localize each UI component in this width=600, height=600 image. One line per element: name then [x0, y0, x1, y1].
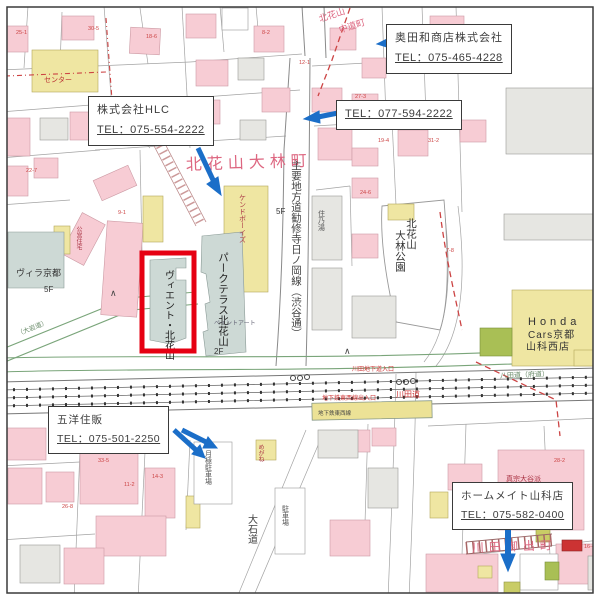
- svg-text:北花山: 北花山: [405, 218, 417, 250]
- svg-text:8-2: 8-2: [262, 30, 270, 36]
- company-tel: TEL：077-594-2222: [345, 105, 453, 125]
- svg-text:住乃湯: 住乃湯: [318, 209, 326, 232]
- svg-text:地下鉄東西線出入口: 地下鉄東西線出入口: [322, 394, 376, 402]
- green-building: [480, 328, 512, 356]
- svg-text:ペイントアート: ペイントアート: [214, 320, 256, 327]
- svg-text:7-8: 7-8: [446, 248, 454, 254]
- svg-text:公営住宅: 公営住宅: [75, 226, 82, 250]
- svg-text:（大岩道）: （大岩道）: [15, 317, 49, 338]
- map-screenshot: 30-525-118-68-212-127-319-431-224-67-815…: [0, 0, 600, 600]
- svg-text:11-2: 11-2: [124, 482, 135, 488]
- svg-text:5F: 5F: [44, 285, 53, 294]
- annotation-box-homemate: ホームメイト山科店 TEL：075-582-0400: [452, 482, 573, 530]
- svg-text:めがね: めがね: [257, 444, 264, 462]
- company-name: 奥田和商店株式会社: [395, 29, 503, 49]
- annotation-box-tel077: TEL：077-594-2222: [336, 100, 462, 130]
- svg-text:33-5: 33-5: [98, 458, 109, 464]
- svg-text:28-2: 28-2: [554, 458, 565, 464]
- svg-text:大林公園: 大林公園: [394, 229, 406, 273]
- svg-text:2F: 2F: [214, 347, 223, 356]
- svg-text:川田御出町: 川田御出町: [472, 537, 557, 555]
- svg-text:センター: センター: [44, 75, 72, 84]
- svg-text:Cars京都: Cars京都: [528, 328, 575, 341]
- company-tel: TEL：075-501-2250: [57, 430, 160, 449]
- svg-text:主要地方道勧修寺日ノ岡線（渋谷通）: 主要地方道勧修寺日ノ岡線（渋谷通）: [290, 160, 302, 339]
- annotation-box-goyo: 五洋住販 TEL：075-501-2250: [48, 406, 169, 454]
- annotation-box-okudawa: 奥田和商店株式会社 TEL：075-465-4228: [386, 24, 512, 74]
- svg-text:月極駐車場: 月極駐車場: [205, 450, 213, 486]
- svg-text:パークテラス北花山: パークテラス北花山: [217, 252, 229, 347]
- svg-text:大石道: 大石道: [246, 513, 258, 544]
- svg-text:19-4: 19-4: [378, 138, 389, 144]
- svg-text:Honda: Honda: [528, 316, 580, 328]
- svg-text:31-2: 31-2: [428, 138, 439, 144]
- company-name: ホームメイト山科店: [461, 487, 564, 506]
- company-tel: TEL：075-554-2222: [97, 121, 205, 141]
- svg-text:川田地下道入口: 川田地下道入口: [352, 365, 394, 373]
- svg-text:ヴィラ京都: ヴィラ京都: [16, 267, 61, 278]
- company-name: 株式会社HLC: [97, 101, 205, 121]
- svg-text:∧: ∧: [110, 288, 117, 298]
- svg-text:26-8: 26-8: [62, 504, 73, 510]
- svg-text:25-1: 25-1: [16, 30, 27, 36]
- svg-text:山科西店: 山科西店: [526, 340, 570, 353]
- svg-text:18-6: 18-6: [146, 34, 157, 40]
- svg-text:30-5: 30-5: [88, 26, 99, 32]
- svg-text:ケンドボーイズ: ケンドボーイズ: [239, 194, 247, 243]
- svg-text:八田道（府道）: 八田道（府道）: [500, 369, 549, 380]
- svg-text:24-6: 24-6: [360, 190, 371, 196]
- annotation-box-hlc: 株式会社HLC TEL：075-554-2222: [88, 96, 214, 146]
- svg-text:14-3: 14-3: [152, 474, 163, 480]
- company-name: 五洋住販: [57, 411, 160, 430]
- svg-text:22-7: 22-7: [26, 168, 37, 174]
- svg-text:5F: 5F: [276, 207, 285, 216]
- svg-text:地下鉄東西線: 地下鉄東西線: [318, 409, 352, 417]
- svg-text:北花山: 北花山: [317, 5, 346, 24]
- svg-text:12-1: 12-1: [299, 60, 310, 66]
- svg-text:9-1: 9-1: [118, 210, 126, 216]
- svg-text:駐車場: 駐車場: [282, 504, 290, 527]
- svg-text:ヴィエント・北花山: ヴィエント・北花山: [163, 269, 175, 360]
- company-tel: TEL：075-582-0400: [461, 506, 564, 525]
- svg-text:∧: ∧: [344, 346, 351, 356]
- company-tel: TEL：075-465-4228: [395, 49, 503, 69]
- svg-text:川田道: 川田道: [396, 389, 420, 399]
- villa-kyoto-building: [8, 232, 64, 288]
